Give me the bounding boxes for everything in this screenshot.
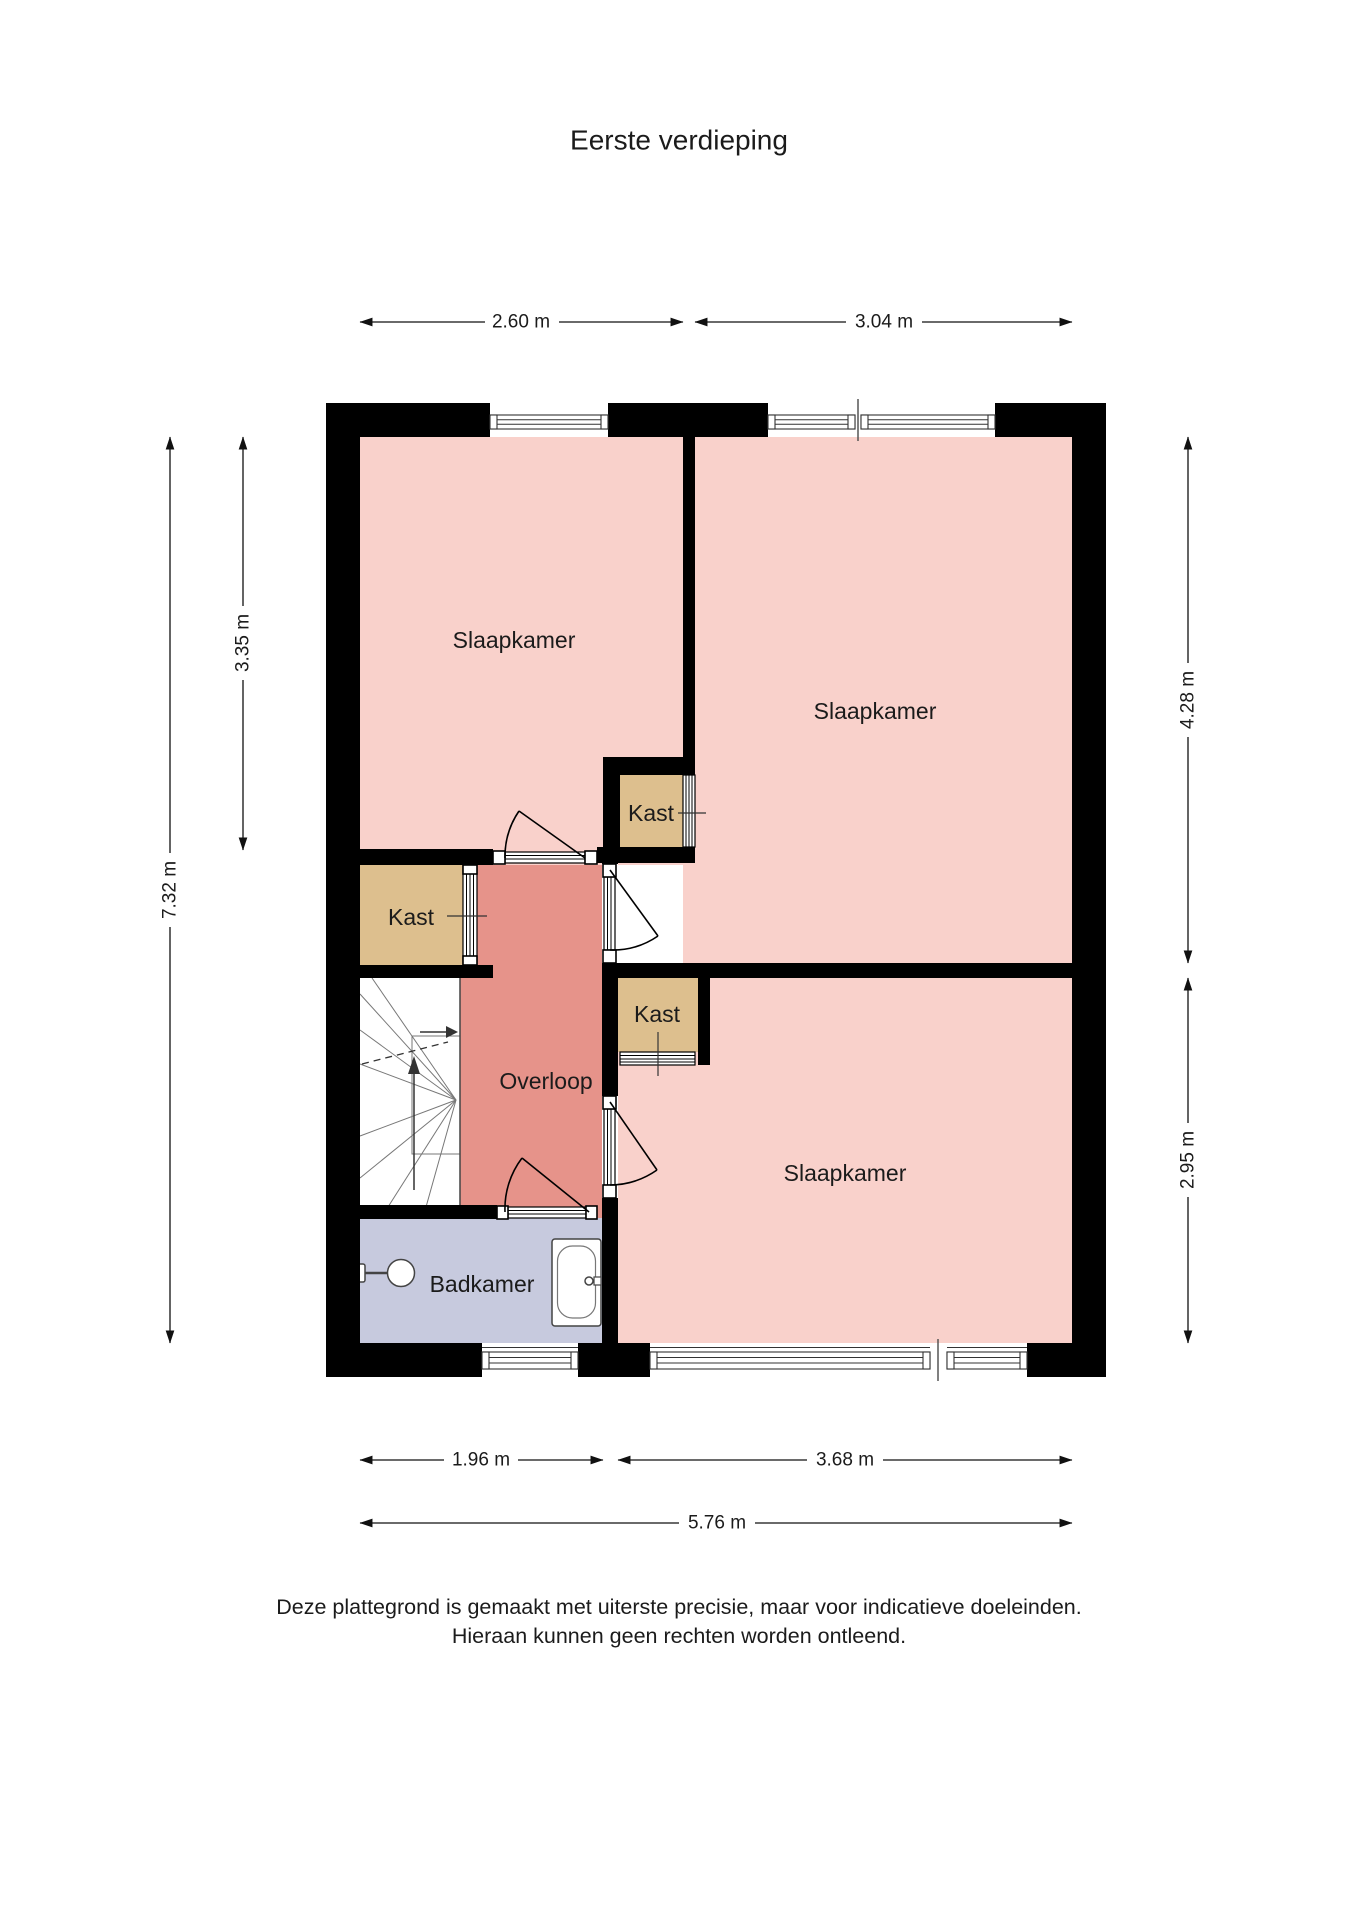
svg-text:3.35 m: 3.35 m bbox=[233, 614, 254, 672]
window-bedroom3-bottom-right bbox=[947, 1348, 1027, 1370]
svg-text:3.04 m: 3.04 m bbox=[855, 312, 913, 333]
door-closet1 bbox=[463, 865, 477, 965]
wall-bedroom1-bottom bbox=[360, 849, 493, 865]
room-label-bedroom-3: Slaapkamer bbox=[784, 1160, 907, 1186]
page-title: Eerste verdieping bbox=[570, 125, 788, 156]
svg-text:2.95 m: 2.95 m bbox=[1178, 1131, 1199, 1189]
window-bathroom-bottom bbox=[482, 1348, 578, 1370]
wall-top-b bbox=[608, 403, 768, 437]
window-bedroom2-top-right bbox=[861, 415, 995, 429]
wall-top-c bbox=[995, 403, 1106, 437]
wall-closet3-right bbox=[698, 978, 710, 1065]
room-label-closet-1: Kast bbox=[388, 904, 435, 930]
room-label-bedroom-1: Slaapkamer bbox=[453, 627, 576, 653]
window-bedroom3-bottom-left bbox=[650, 1348, 930, 1370]
wall-closet2-left bbox=[603, 775, 620, 847]
svg-text:3.68 m: 3.68 m bbox=[816, 1450, 874, 1471]
disclaimer-line-1: Deze plattegrond is gemaakt met uiterste… bbox=[276, 1595, 1081, 1619]
wall-bottom-b bbox=[578, 1343, 650, 1377]
door-landing-bedroom2 bbox=[602, 864, 658, 963]
room-label-closet-2: Kast bbox=[628, 800, 675, 826]
wall-bedroom2-bedroom3 bbox=[618, 963, 1072, 978]
wall-top-a bbox=[326, 403, 490, 437]
wall-closet1-bottom bbox=[360, 965, 493, 978]
dim-bottom-total: 5.76 m bbox=[360, 1511, 1072, 1535]
wall-bathroom-top bbox=[360, 1205, 497, 1219]
dim-top-1: 2.60 m bbox=[360, 310, 683, 334]
sink-icon bbox=[388, 1260, 415, 1287]
wall-right bbox=[1072, 403, 1106, 1377]
door-closet2 bbox=[683, 775, 695, 847]
dim-bottom-1: 1.96 m bbox=[360, 1448, 603, 1472]
floor-plan-svg: Eerste verdieping bbox=[0, 0, 1358, 1920]
wall-bottom-a bbox=[326, 1343, 482, 1377]
dim-left-outer: 7.32 m bbox=[158, 437, 182, 1343]
dim-top-2: 3.04 m bbox=[695, 310, 1072, 334]
dim-right-2: 2.95 m bbox=[1176, 978, 1200, 1343]
wall-closet2-bottom bbox=[597, 847, 695, 863]
room-label-closet-3: Kast bbox=[634, 1001, 681, 1027]
window-bedroom1-top bbox=[490, 415, 608, 429]
dim-bottom-2: 3.68 m bbox=[618, 1448, 1072, 1472]
room-label-bedroom-2: Slaapkamer bbox=[814, 698, 937, 724]
staircase bbox=[360, 978, 460, 1207]
bathtub-tap bbox=[585, 1277, 593, 1285]
wall-bottom-c bbox=[1027, 1343, 1106, 1377]
window-bedroom2-top-left bbox=[768, 415, 855, 429]
svg-text:1.96 m: 1.96 m bbox=[452, 1450, 510, 1471]
wall-closet2-top bbox=[603, 757, 695, 775]
svg-text:2.60 m: 2.60 m bbox=[492, 312, 550, 333]
svg-text:5.76 m: 5.76 m bbox=[688, 1513, 746, 1534]
wall-left bbox=[326, 403, 360, 1377]
wall-bedroom1-bedroom2 bbox=[683, 437, 695, 757]
floor-plan-page: Eerste verdieping bbox=[0, 0, 1358, 1920]
dim-left-inner: 3.35 m bbox=[231, 437, 255, 850]
svg-text:7.32 m: 7.32 m bbox=[160, 861, 181, 919]
dim-right-1: 4.28 m bbox=[1176, 437, 1200, 963]
room-label-bathroom: Badkamer bbox=[430, 1271, 535, 1297]
disclaimer-line-2: Hieraan kunnen geen rechten worden ontle… bbox=[452, 1624, 906, 1648]
room-label-landing: Overloop bbox=[499, 1068, 592, 1094]
svg-text:4.28 m: 4.28 m bbox=[1178, 671, 1199, 729]
